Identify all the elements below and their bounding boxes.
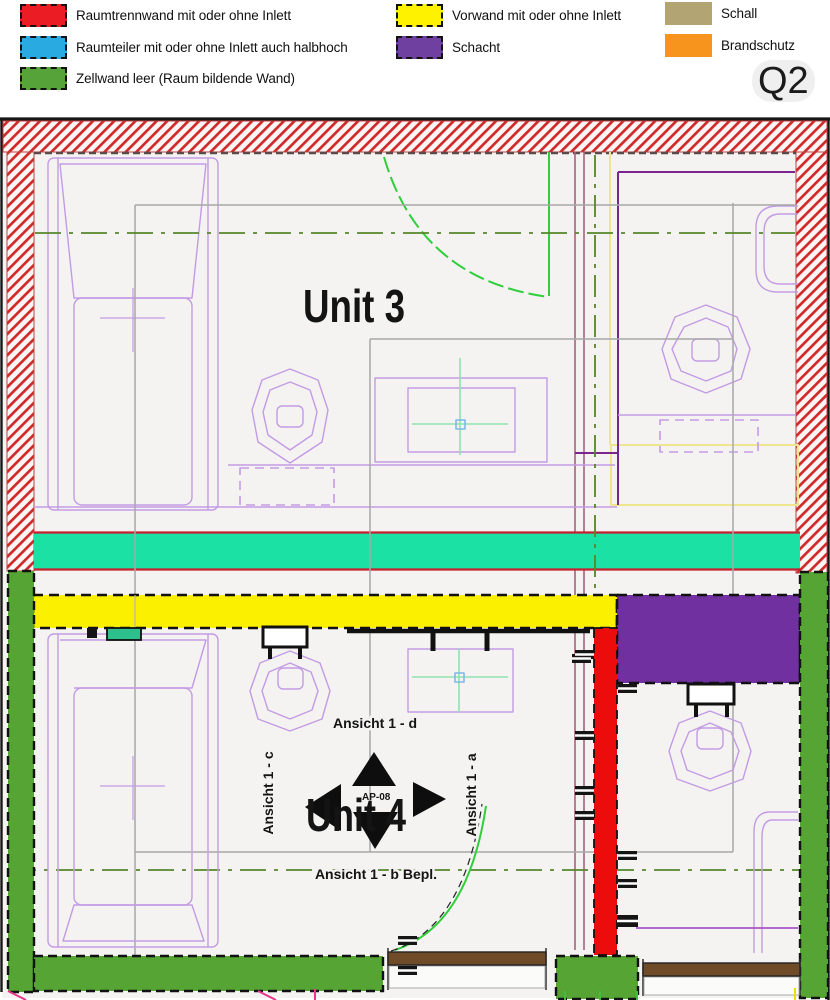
view-label-c: Ansicht 1 - c (260, 751, 276, 834)
view-label-b: Ansicht 1 - b Bepl. (315, 866, 437, 882)
red-wall (594, 628, 617, 955)
cad-plan-screenshot: Raumtrennwand mit oder ohne Inlett Raumt… (0, 0, 830, 1000)
green-wall-left (8, 571, 34, 992)
wood-beam-1 (388, 952, 546, 965)
schacht-block (617, 595, 800, 683)
vorwand-yellow-band (33, 595, 617, 628)
floor-plan-canvas: Unit 3 Unit 4 AP-08 Ansicht 1 - d Ansich… (0, 0, 830, 1000)
floor-plan: Unit 3 Unit 4 AP-08 Ansicht 1 - d Ansich… (0, 0, 830, 1000)
green-wall-bottom (34, 956, 383, 991)
wood-beam-2 (643, 963, 800, 976)
unit3-label: Unit 3 (303, 280, 405, 332)
view-label-a: Ansicht 1 - a (463, 753, 479, 836)
marker-label: AP-08 (362, 792, 391, 803)
green-wall-right (800, 572, 828, 998)
green-wall-bottom-mid (556, 956, 638, 999)
unit4-label: Unit 4 (306, 789, 406, 841)
teal-fixture (107, 628, 141, 640)
teal-band (34, 533, 800, 570)
view-label-d: Ansicht 1 - d (333, 715, 417, 731)
door-bottom-right (643, 959, 800, 996)
